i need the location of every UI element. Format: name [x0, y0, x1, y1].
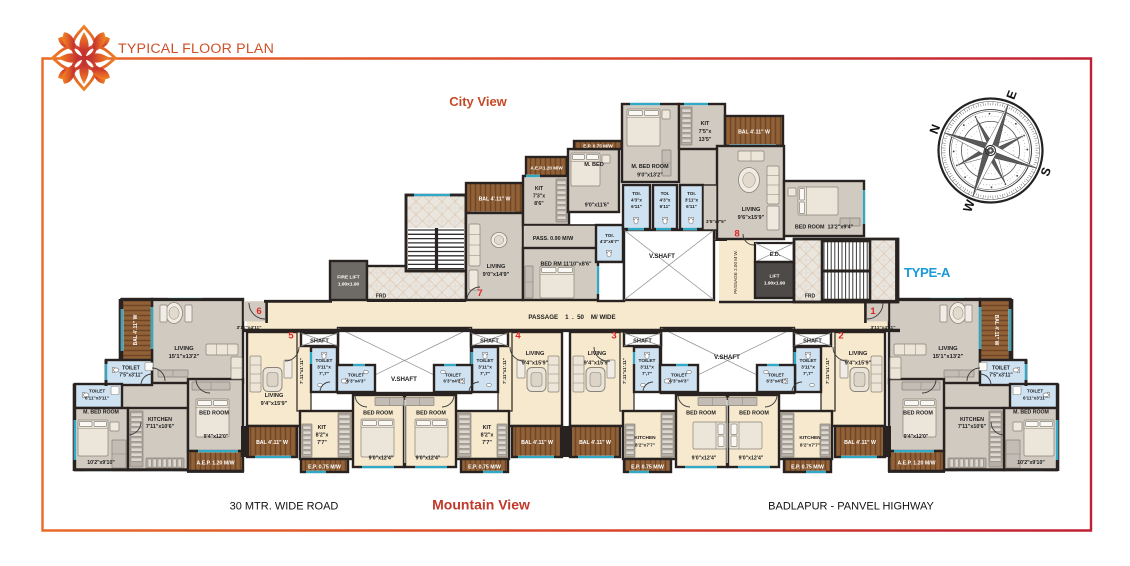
svg-text:M. BED: M. BED — [584, 162, 604, 168]
svg-text:8'2"x7'7": 8'2"x7'7" — [635, 443, 655, 449]
svg-text:7'5"x: 7'5"x — [699, 129, 712, 135]
svg-text:KITCHEN: KITCHEN — [634, 435, 656, 441]
svg-text:5: 5 — [288, 331, 294, 342]
svg-text:BED ROOM: BED ROOM — [416, 411, 446, 417]
svg-text:M. BED ROOM: M. BED ROOM — [1013, 410, 1049, 416]
svg-text:10'2"x9'10": 10'2"x9'10" — [1017, 460, 1045, 466]
svg-text:7'7": 7'7" — [317, 440, 327, 446]
svg-text:BED ROOM: BED ROOM — [739, 411, 769, 417]
svg-text:30 MTR. WIDE ROAD: 30 MTR. WIDE ROAD — [230, 501, 339, 513]
svg-text:M. BED ROOM: M. BED ROOM — [631, 164, 669, 170]
svg-text:TYPICAL FLOOR PLAN: TYPICAL FLOOR PLAN — [118, 41, 274, 57]
svg-text:8'2"x: 8'2"x — [316, 433, 329, 439]
svg-text:6'3"x4'3": 6'3"x4'3" — [669, 379, 688, 384]
svg-text:7'11"x10'6": 7'11"x10'6" — [146, 424, 175, 430]
svg-text:KIT: KIT — [701, 121, 710, 127]
svg-text:8'6": 8'6" — [534, 201, 544, 207]
svg-text:7'5"x3'11": 7'5"x3'11" — [119, 373, 143, 379]
svg-text:13'5": 13'5" — [699, 137, 712, 143]
svg-text:V.SHAFT: V.SHAFT — [391, 376, 417, 383]
svg-text:2: 2 — [838, 331, 843, 342]
svg-text:A.E.P. 1.20 M/W: A.E.P. 1.20 M/W — [197, 461, 235, 467]
svg-text:TOILET: TOILET — [122, 366, 140, 372]
svg-text:6'11"x3'11": 6'11"x3'11" — [85, 396, 109, 401]
svg-text:7'.11"x1'.11": 7'.11"x1'.11" — [825, 358, 830, 384]
svg-text:6'11": 6'11" — [686, 204, 697, 209]
svg-text:3: 3 — [611, 331, 616, 342]
svg-text:TOILET: TOILET — [768, 373, 784, 378]
svg-text:TOILET: TOILET — [1027, 389, 1043, 394]
svg-text:7'.11"x1'.11": 7'.11"x1'.11" — [622, 358, 627, 384]
svg-text:3'11"x: 3'11"x — [801, 365, 815, 371]
svg-text:TYPE-A: TYPE-A — [904, 265, 951, 280]
svg-text:9'4"x12'0": 9'4"x12'0" — [204, 434, 229, 440]
svg-text:10'2"x9'10": 10'2"x9'10" — [87, 460, 115, 466]
svg-text:9'4"x15'9": 9'4"x15'9" — [261, 401, 288, 407]
svg-text:TOILET: TOILET — [89, 389, 105, 394]
svg-text:KIT: KIT — [318, 425, 327, 431]
svg-text:BED RM 11'10"x8'6": BED RM 11'10"x8'6" — [540, 262, 592, 268]
svg-text:7'7": 7'7" — [482, 440, 492, 446]
svg-text:E.P. 0.75 M/W: E.P. 0.75 M/W — [583, 143, 613, 148]
svg-text:9'0"x14'9": 9'0"x14'9" — [483, 272, 510, 278]
svg-text:4: 4 — [515, 331, 521, 342]
svg-text:7'5"x3'11": 7'5"x3'11" — [989, 373, 1013, 379]
svg-text:E.P. 0.75 M/W: E.P. 0.75 M/W — [308, 465, 341, 471]
svg-text:E.P. 0.75 M/W: E.P. 0.75 M/W — [468, 465, 501, 471]
svg-text:7',7": 7',7" — [803, 371, 813, 377]
svg-text:TOI.: TOI. — [661, 191, 670, 196]
svg-text:TOILET: TOILET — [992, 366, 1010, 372]
svg-text:7'11"x10'6": 7'11"x10'6" — [958, 424, 987, 430]
svg-text:BAL 4'.11" W: BAL 4'.11" W — [738, 130, 770, 136]
svg-text:9'0"x12'4": 9'0"x12'4" — [739, 456, 764, 462]
svg-text:3'11"x: 3'11"x — [685, 197, 699, 202]
svg-text:6'3"x4'3": 6'3"x4'3" — [443, 379, 462, 384]
svg-text:BED ROOM: BED ROOM — [363, 411, 393, 417]
svg-text:TOILET: TOILET — [639, 358, 656, 364]
svg-text:6'11": 6'11" — [631, 204, 642, 209]
svg-text:TOI.: TOI. — [632, 191, 641, 196]
svg-text:V.SHAFT: V.SHAFT — [649, 253, 675, 260]
svg-text:15'1"x13'2": 15'1"x13'2" — [933, 354, 964, 360]
svg-text:TOILET: TOILET — [445, 373, 461, 378]
svg-text:SHAFT: SHAFT — [480, 339, 499, 345]
svg-text:SHAFT: SHAFT — [633, 339, 652, 345]
svg-text:BAL 4'.11" W: BAL 4'.11" W — [844, 440, 876, 446]
svg-text:FRD: FRD — [376, 294, 387, 300]
svg-text:7',7": 7',7" — [480, 371, 490, 377]
svg-text:PASSAGE 1 . 50 M/ WIDE: PASSAGE 1 . 50 M/ WIDE — [528, 314, 615, 321]
svg-text:8: 8 — [734, 229, 739, 240]
svg-text:9'0"x12'4": 9'0"x12'4" — [369, 456, 394, 462]
svg-text:8'2"x: 8'2"x — [481, 433, 494, 439]
svg-text:8'2"x7'7": 8'2"x7'7" — [800, 443, 820, 449]
svg-text:TOILET: TOILET — [477, 358, 494, 364]
svg-text:9'0"x11'6": 9'0"x11'6" — [585, 203, 610, 209]
svg-text:3'5"x7'5": 3'5"x7'5" — [706, 219, 726, 225]
svg-text:KIT: KIT — [535, 186, 544, 192]
svg-text:KITCHEN: KITCHEN — [148, 417, 172, 423]
svg-text:LIVING: LIVING — [849, 351, 868, 357]
svg-text:BAL 4'.11" W: BAL 4'.11" W — [479, 197, 511, 203]
svg-text:E.P. 0.75 M/W: E.P. 0.75 M/W — [631, 465, 664, 471]
svg-text:BAL 4'.11" W: BAL 4'.11" W — [579, 440, 611, 446]
svg-text:7',7": 7',7" — [642, 371, 652, 377]
svg-text:15'1"x13'2": 15'1"x13'2" — [169, 354, 200, 360]
svg-text:6'3"x4'3": 6'3"x4'3" — [346, 379, 365, 384]
svg-text:PASSAGE 2.00 M W.: PASSAGE 2.00 M W. — [733, 250, 738, 294]
svg-text:6'11"x3'11": 6'11"x3'11" — [1023, 396, 1047, 401]
svg-text:7'.11"x1'.11": 7'.11"x1'.11" — [502, 358, 507, 384]
svg-text:BAL 4'.11" W: BAL 4'.11" W — [256, 440, 288, 446]
svg-text:9'4"x12'0": 9'4"x12'0" — [904, 434, 929, 440]
svg-text:TOILET: TOILET — [671, 373, 687, 378]
svg-text:LIVING: LIVING — [742, 207, 761, 213]
svg-text:9'4"x15'9": 9'4"x15'9" — [584, 361, 611, 367]
svg-text:4'3"x6'7": 4'3"x6'7" — [600, 239, 619, 244]
svg-text:BAL 4'.11" W: BAL 4'.11" W — [993, 315, 999, 346]
svg-text:9'4"x15'9": 9'4"x15'9" — [522, 361, 549, 367]
svg-text:KITCHEN: KITCHEN — [799, 435, 821, 441]
svg-text:BADLAPUR - PANVEL HIGHWAY: BADLAPUR - PANVEL HIGHWAY — [768, 501, 934, 513]
svg-text:M. BED ROOM: M. BED ROOM — [83, 410, 119, 416]
svg-text:TOI.: TOI. — [687, 191, 696, 196]
svg-text:BAL 4'.11" W: BAL 4'.11" W — [521, 440, 553, 446]
svg-text:KIT: KIT — [483, 425, 492, 431]
svg-text:1.90x1.90: 1.90x1.90 — [764, 281, 786, 287]
svg-text:6: 6 — [256, 306, 261, 317]
svg-text:LIVING: LIVING — [938, 346, 958, 352]
svg-text:A.E.P.1.20 M/W: A.E.P.1.20 M/W — [530, 166, 563, 171]
svg-text:7'.11"x1'.11": 7'.11"x1'.11" — [299, 358, 304, 384]
svg-text:A.E.P. 1.20 M/W: A.E.P. 1.20 M/W — [898, 461, 936, 467]
svg-text:BED ROOM: BED ROOM — [199, 411, 229, 417]
svg-text:3'11"x: 3'11"x — [478, 365, 492, 371]
svg-text:LIVING: LIVING — [526, 351, 545, 357]
svg-text:9'0"x12'4": 9'0"x12'4" — [692, 456, 717, 462]
svg-text:KITCHEN: KITCHEN — [960, 417, 984, 423]
svg-text:E.D.: E.D. — [770, 252, 781, 258]
svg-text:FIRE LIFT: FIRE LIFT — [337, 275, 359, 281]
svg-text:LIFT: LIFT — [769, 274, 779, 280]
svg-text:6'3"x4'3": 6'3"x4'3" — [766, 379, 785, 384]
svg-text:TOILET: TOILET — [348, 373, 364, 378]
svg-text:7',7": 7',7" — [319, 371, 329, 377]
svg-text:Mountain View: Mountain View — [432, 497, 530, 513]
svg-text:4'3"x: 4'3"x — [660, 197, 671, 202]
svg-text:LIVING: LIVING — [174, 346, 194, 352]
svg-text:FRD: FRD — [805, 294, 816, 300]
svg-text:BED ROOM 13'2"x9'4": BED ROOM 13'2"x9'4" — [795, 225, 854, 231]
svg-text:9'0"x12'4": 9'0"x12'4" — [416, 456, 441, 462]
svg-text:6'11": 6'11" — [660, 204, 671, 209]
svg-text:E.P. 0.75 M/W: E.P. 0.75 M/W — [791, 465, 824, 471]
svg-text:TOI.: TOI. — [605, 233, 614, 238]
svg-text:1.90x1.90: 1.90x1.90 — [338, 282, 360, 288]
svg-text:3'11"x: 3'11"x — [317, 365, 331, 371]
svg-text:LIVING: LIVING — [487, 264, 506, 270]
svg-text:V.SHAFT: V.SHAFT — [714, 354, 740, 361]
svg-text:9'0"x13'2": 9'0"x13'2" — [637, 173, 663, 179]
svg-text:7: 7 — [477, 288, 482, 299]
svg-text:TOILET: TOILET — [316, 358, 333, 364]
svg-text:9'4"x15'9": 9'4"x15'9" — [845, 361, 872, 367]
svg-text:City View: City View — [449, 94, 507, 109]
svg-text:SHAFT: SHAFT — [803, 339, 822, 345]
svg-text:7'3"x: 7'3"x — [533, 193, 545, 199]
svg-text:3'11"x: 3'11"x — [640, 365, 654, 371]
svg-text:PASS. 0.90 M/W: PASS. 0.90 M/W — [533, 236, 574, 242]
svg-text:TOILET: TOILET — [800, 358, 817, 364]
svg-text:BED ROOM: BED ROOM — [903, 411, 933, 417]
svg-text:LIVING: LIVING — [265, 393, 284, 399]
svg-text:9'6"x15'9": 9'6"x15'9" — [738, 215, 765, 221]
svg-text:BED ROOM: BED ROOM — [686, 411, 716, 417]
svg-text:1: 1 — [870, 306, 876, 317]
svg-text:4'3"x: 4'3"x — [631, 197, 642, 202]
svg-text:BAL 4'.11" W: BAL 4'.11" W — [133, 314, 139, 345]
svg-text:SHAFT: SHAFT — [310, 339, 329, 345]
